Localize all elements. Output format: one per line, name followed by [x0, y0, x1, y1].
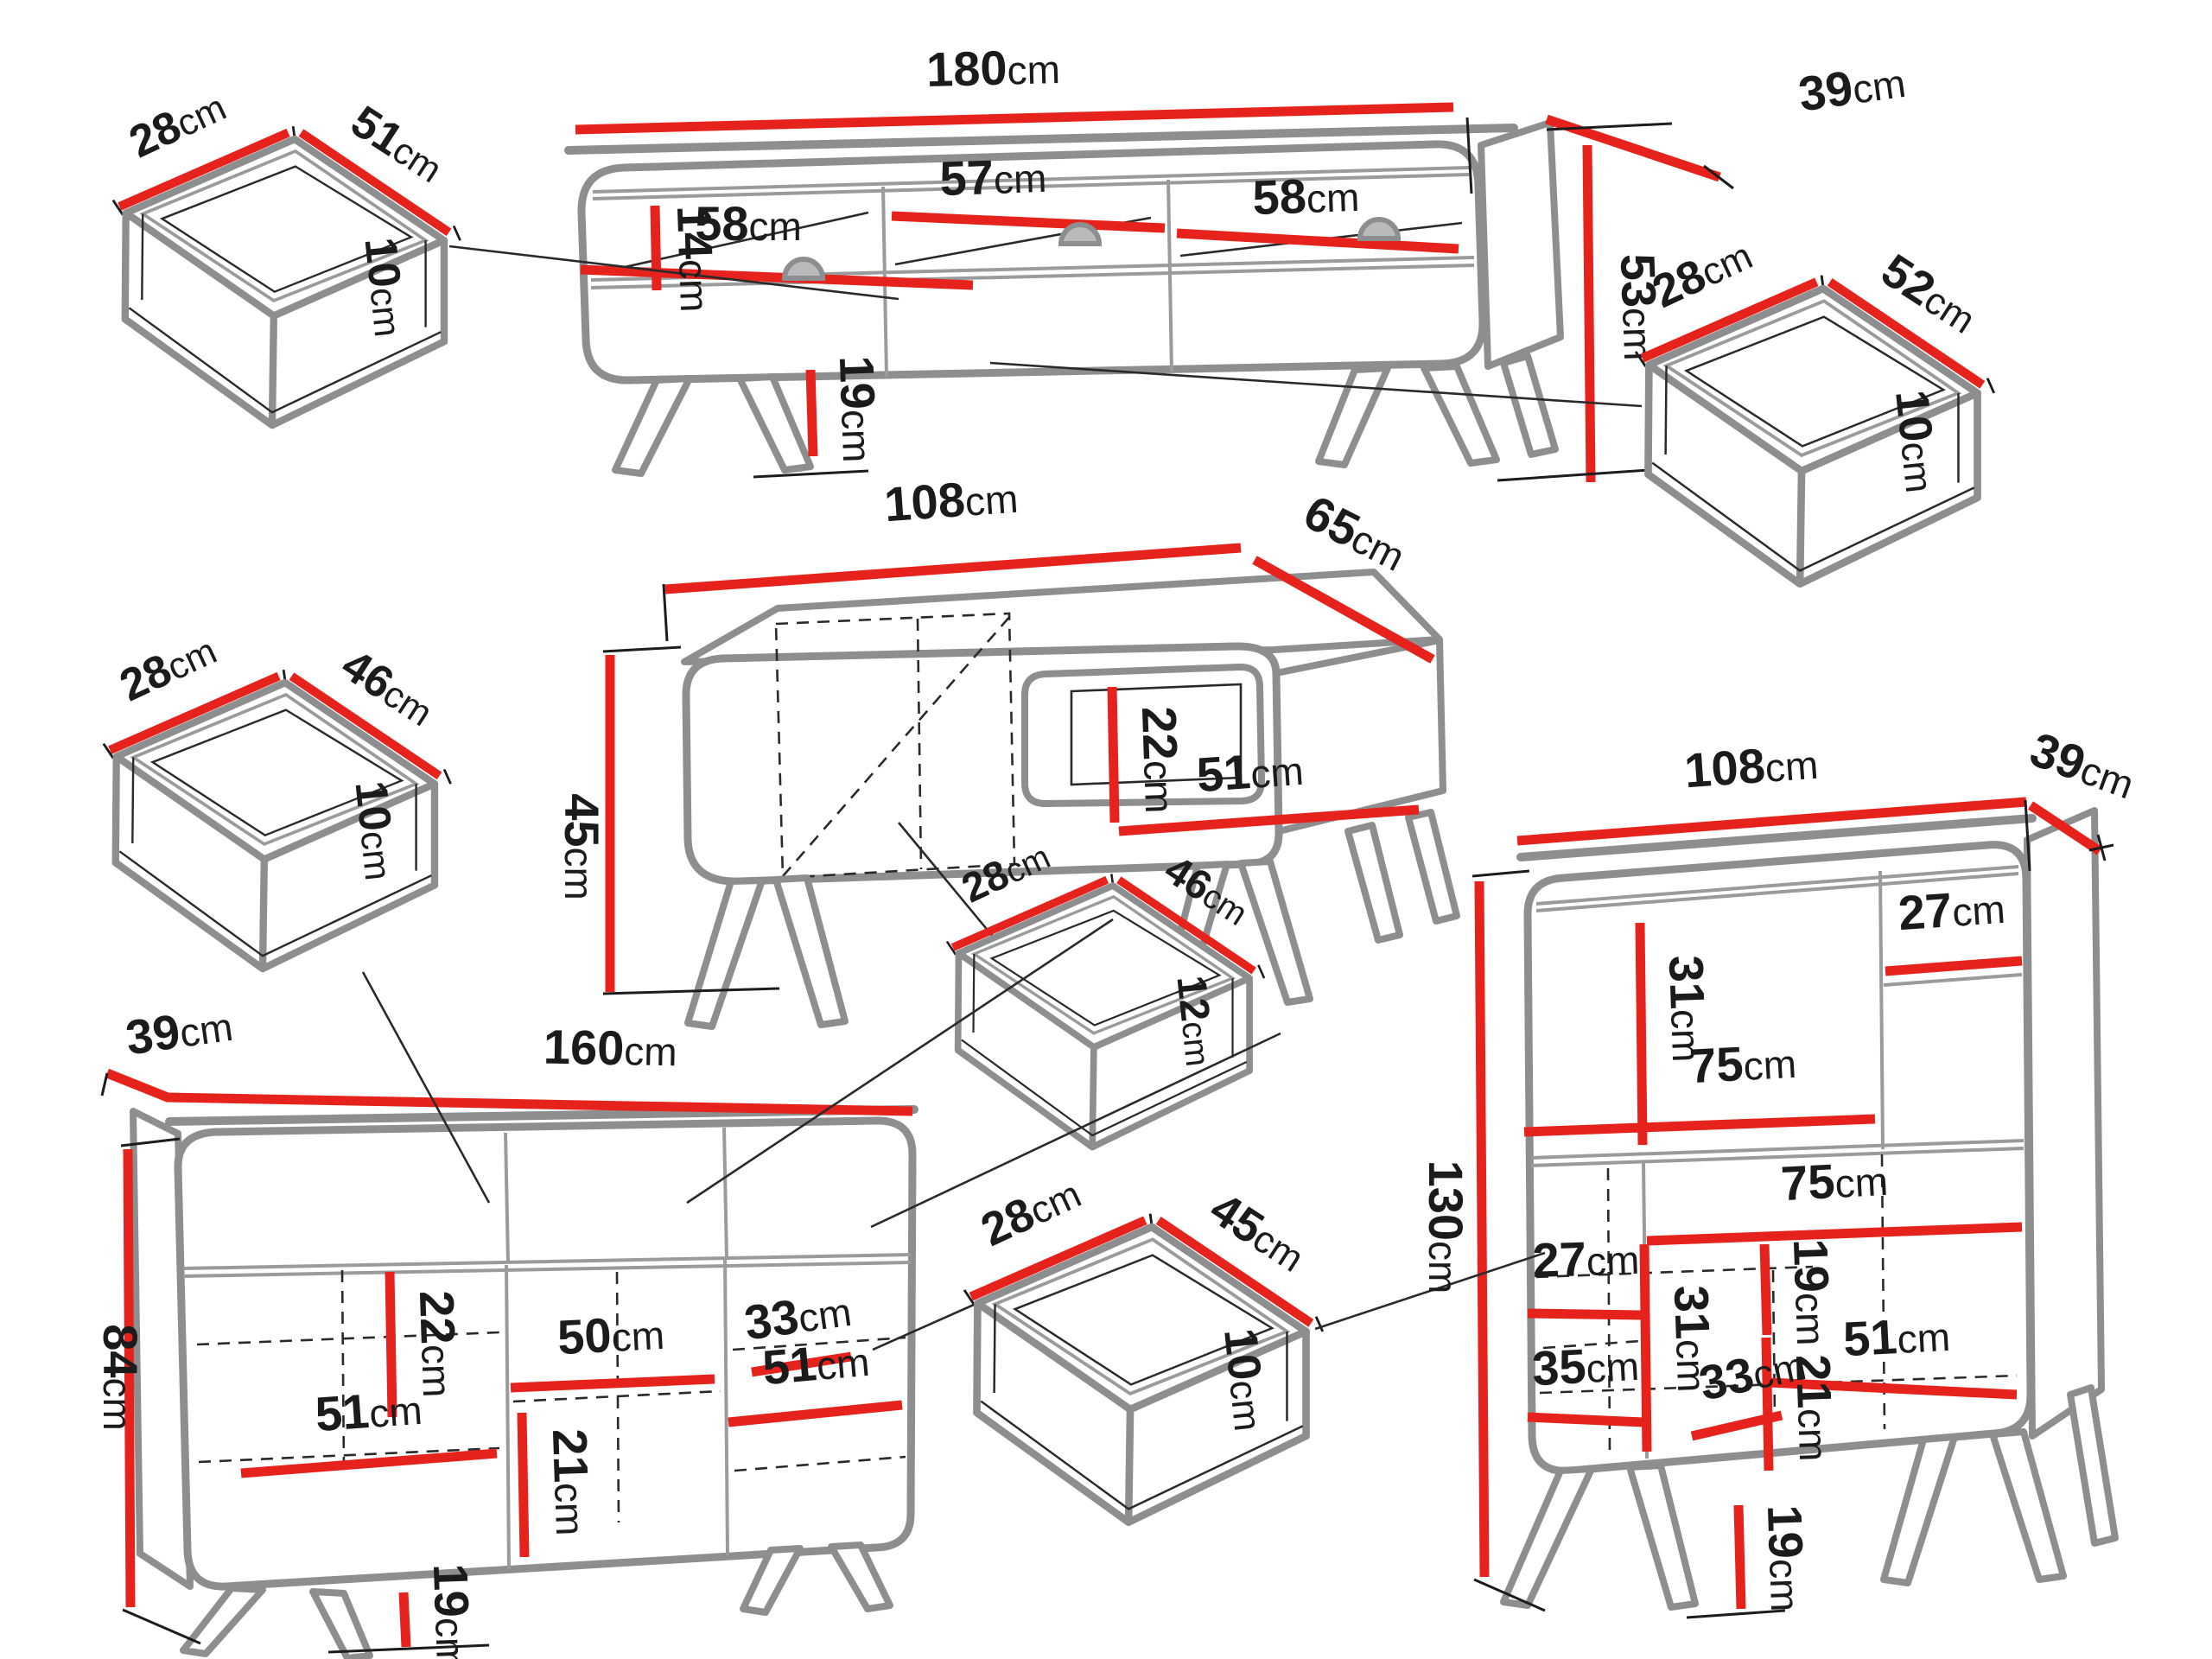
furniture-dimension-diagram: 180cm 39cm 53cm 14cm 58cm 57cm 58cm 19cm…	[0, 0, 2212, 1659]
diagram-canvas: 180cm 39cm 53cm 14cm 58cm 57cm 58cm 19cm…	[0, 0, 2212, 1659]
drawer-top-left: 28cm 51cm 10cm	[113, 80, 461, 425]
drawer-mid-center: 28cm 46cm 12cm	[947, 832, 1264, 1147]
drawer-width-label: 46cm	[333, 640, 443, 736]
tv-left-niche-label: 58cm	[695, 196, 802, 251]
drawer-width-label: 51cm	[342, 97, 453, 193]
drawer-mid-left: 28cm 46cm 10cm	[104, 624, 451, 969]
bookcase-width-label: 108cm	[1682, 734, 1820, 798]
bookcase-side-face	[2027, 810, 2101, 1436]
drawer-depth-label: 28cm	[1644, 228, 1759, 319]
tv-leg-height-label: 19cm	[829, 354, 887, 463]
tv-stand-side-face	[1481, 123, 1560, 366]
tv-depth-label: 39cm	[1796, 53, 1909, 122]
sideboard-width-label: 160cm	[543, 1020, 677, 1077]
bookcase-leg-height-label: 19cm	[1758, 1503, 1815, 1612]
drawer-depth-label: 28cm	[112, 624, 224, 711]
coffee-depth-label: 65cm	[1295, 484, 1415, 581]
bookcase-height-label: 130cm	[1419, 1160, 1473, 1294]
coffee-width-label: 108cm	[882, 468, 1020, 532]
sideboard-leg-height-label: 19cm	[423, 1562, 481, 1659]
sideboard-depth-label: 39cm	[123, 996, 236, 1065]
drawer-top-right: 28cm 52cm 10cm	[1636, 228, 1994, 584]
coffee-height-label: 45cm	[555, 793, 609, 900]
drawer-width-label: 45cm	[1201, 1183, 1315, 1282]
drawer-depth-label: 28cm	[973, 1166, 1088, 1257]
drawer-width-label: 52cm	[1872, 245, 1986, 344]
drawer-bottom-center: 28cm 45cm 10cm	[964, 1166, 1323, 1522]
sideboard-height-label: 84cm	[93, 1324, 148, 1431]
tv-width-label: 180cm	[925, 39, 1060, 97]
coffee-table-side-face	[1276, 640, 1443, 831]
drawer-depth-label: 28cm	[122, 80, 233, 168]
bookcase-depth-label: 39cm	[2024, 721, 2143, 809]
